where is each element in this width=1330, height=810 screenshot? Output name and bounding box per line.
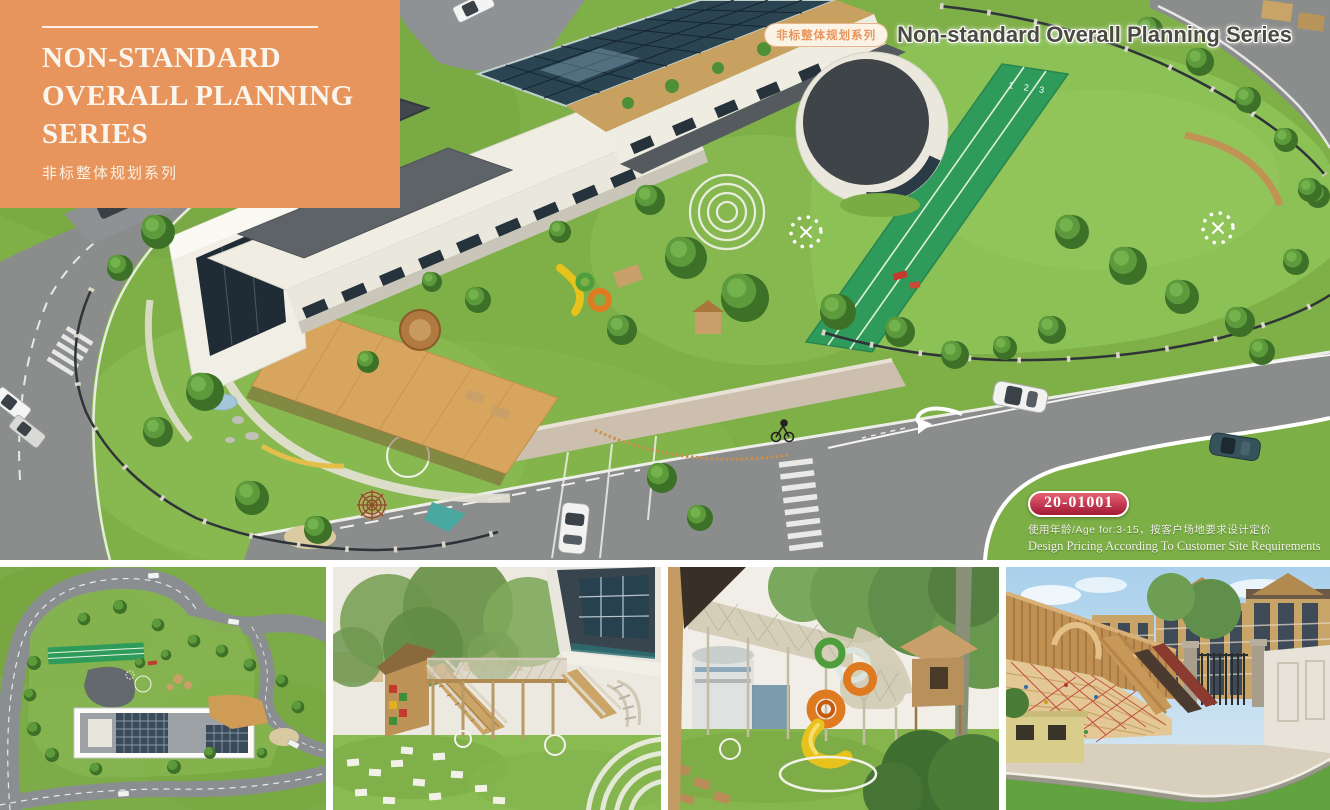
- product-info: 20-01001 使用年龄/Age for:3-15，按客户场地要求设计定价 D…: [1028, 491, 1321, 554]
- series-title-line2: OVERALL PLANNING: [42, 77, 400, 115]
- thumbnail-climbing-slope: [1006, 567, 1330, 810]
- thumbnail-wood-playground: [333, 567, 661, 810]
- thumbnail-row: [0, 567, 1330, 810]
- series-title-box: NON-STANDARD OVERALL PLANNING SERIES 非标整…: [0, 0, 400, 208]
- series-heading-en: Non-standard Overall Planning Series: [897, 22, 1292, 48]
- product-caption-en: Design Pricing According To Customer Sit…: [1028, 539, 1321, 554]
- series-subtitle-cn: 非标整体规划系列: [42, 162, 400, 183]
- cubby-wall: [1006, 711, 1088, 763]
- catalog-page: 1 2 3: [0, 0, 1330, 810]
- thumbnail-site-plan: [0, 567, 326, 810]
- title-rule: [42, 26, 318, 28]
- product-caption-cn: 使用年龄/Age for:3-15，按客户场地要求设计定价: [1028, 522, 1321, 537]
- spider-web: [357, 490, 387, 520]
- parked-car: [558, 502, 590, 555]
- series-title-line1: NON-STANDARD: [42, 39, 400, 77]
- thumbnail-tube-slide: [668, 567, 999, 810]
- series-ribbon: 非标整体规划系列 Non-standard Overall Planning S…: [764, 22, 1292, 48]
- product-code-badge: 20-01001: [1028, 491, 1129, 517]
- series-title-line3: SERIES: [42, 115, 400, 153]
- tree: [1147, 573, 1195, 621]
- series-tag-pill: 非标整体规划系列: [764, 23, 888, 47]
